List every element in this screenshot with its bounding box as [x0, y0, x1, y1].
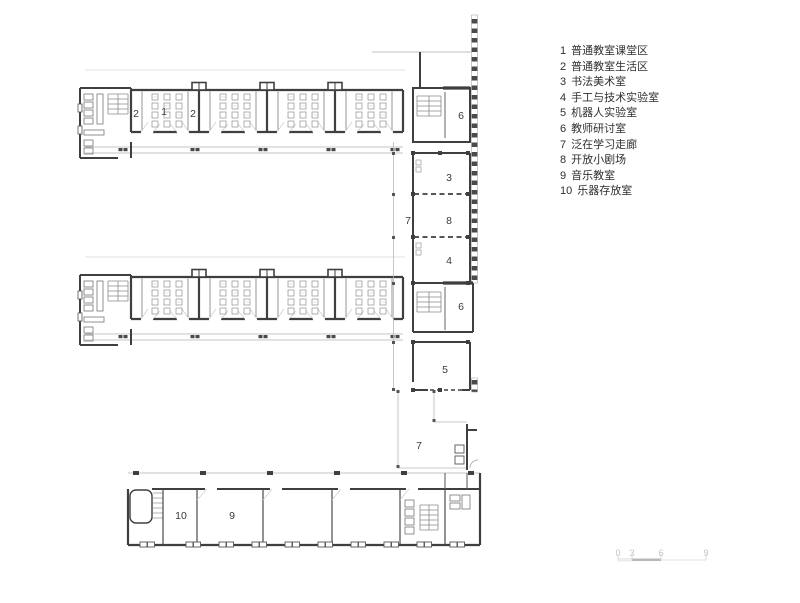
room-label-teaching: 1 — [161, 106, 167, 118]
legend-item-1: 1普通教室课堂区 — [560, 44, 659, 60]
room-label-corridor-lower: 7 — [416, 440, 422, 452]
legend-num: 4 — [560, 91, 566, 107]
scale-bar: 0 3 6 9 — [615, 548, 708, 561]
legend-label: 教师研讨室 — [571, 122, 626, 138]
wing-bottom — [128, 471, 480, 547]
room-label-seminar-lower: 6 — [458, 301, 464, 313]
legend-item-5: 5机器人实验室 — [560, 106, 659, 122]
legend-label: 音乐教室 — [571, 169, 615, 185]
room-label-corridor-upper: 7 — [405, 215, 411, 227]
wing-middle — [78, 257, 405, 345]
legend-num: 2 — [560, 60, 566, 76]
room-label-living-left: 2 — [133, 108, 139, 120]
floor-plan: 2 1 2 6 3 7 8 4 6 5 7 10 9 0 3 6 9 — [0, 0, 800, 603]
column-strip — [472, 378, 478, 392]
room-label-music: 9 — [229, 510, 235, 522]
legend-num: 5 — [560, 106, 566, 122]
wing-top — [78, 70, 405, 158]
legend-item-4: 4手工与技术实验室 — [560, 91, 659, 107]
legend-item-10: 10乐器存放室 — [560, 184, 659, 200]
legend-label: 书法美术室 — [571, 75, 626, 91]
legend-item-7: 7泛在学习走廊 — [560, 138, 659, 154]
room-label-storage: 10 — [175, 510, 187, 522]
room-label-robotics: 5 — [442, 364, 448, 376]
room-label-seminar-upper: 6 — [458, 110, 464, 122]
legend-label: 机器人实验室 — [571, 106, 637, 122]
legend-label: 开放小剧场 — [571, 153, 626, 169]
legend-num: 9 — [560, 169, 566, 185]
column-strip — [472, 15, 478, 283]
legend-label: 手工与技术实验室 — [571, 91, 659, 107]
legend-label: 普通教室生活区 — [571, 60, 648, 76]
service-block-bottom — [405, 473, 470, 545]
legend-num: 7 — [560, 138, 566, 154]
legend-num: 10 — [560, 184, 572, 200]
open-theater — [413, 194, 470, 237]
room-label-craft-lab: 4 — [446, 255, 452, 267]
stair-core-lower — [413, 283, 473, 332]
room-label-living-right: 2 — [190, 108, 196, 120]
legend-num: 3 — [560, 75, 566, 91]
legend-item-6: 6教师研讨室 — [560, 122, 659, 138]
corridor-connector — [397, 390, 479, 470]
floor-plan-canvas: 2 1 2 6 3 7 8 4 6 5 7 10 9 0 3 6 9 1普通教室… — [0, 0, 800, 603]
legend-num: 6 — [560, 122, 566, 138]
room-labels: 2 1 2 6 3 7 8 4 6 5 7 10 9 — [133, 106, 464, 522]
legend-item-2: 2普通教室生活区 — [560, 60, 659, 76]
legend-item-8: 8开放小剧场 — [560, 153, 659, 169]
legend-num: 1 — [560, 44, 566, 60]
room-label-theater: 8 — [446, 215, 452, 227]
legend-item-3: 3书法美术室 — [560, 75, 659, 91]
legend: 1普通教室课堂区 2普通教室生活区 3书法美术室 4手工与技术实验室 5机器人实… — [560, 44, 659, 200]
calligraphy-art-room — [413, 153, 470, 194]
legend-label: 泛在学习走廊 — [571, 138, 637, 154]
central-spine — [372, 15, 478, 392]
legend-num: 8 — [560, 153, 566, 169]
legend-label: 普通教室课堂区 — [571, 44, 648, 60]
legend-label: 乐器存放室 — [577, 184, 632, 200]
round-room — [130, 490, 152, 523]
craft-tech-lab — [413, 237, 470, 283]
legend-item-9: 9音乐教室 — [560, 169, 659, 185]
room-label-calligraphy: 3 — [446, 172, 452, 184]
